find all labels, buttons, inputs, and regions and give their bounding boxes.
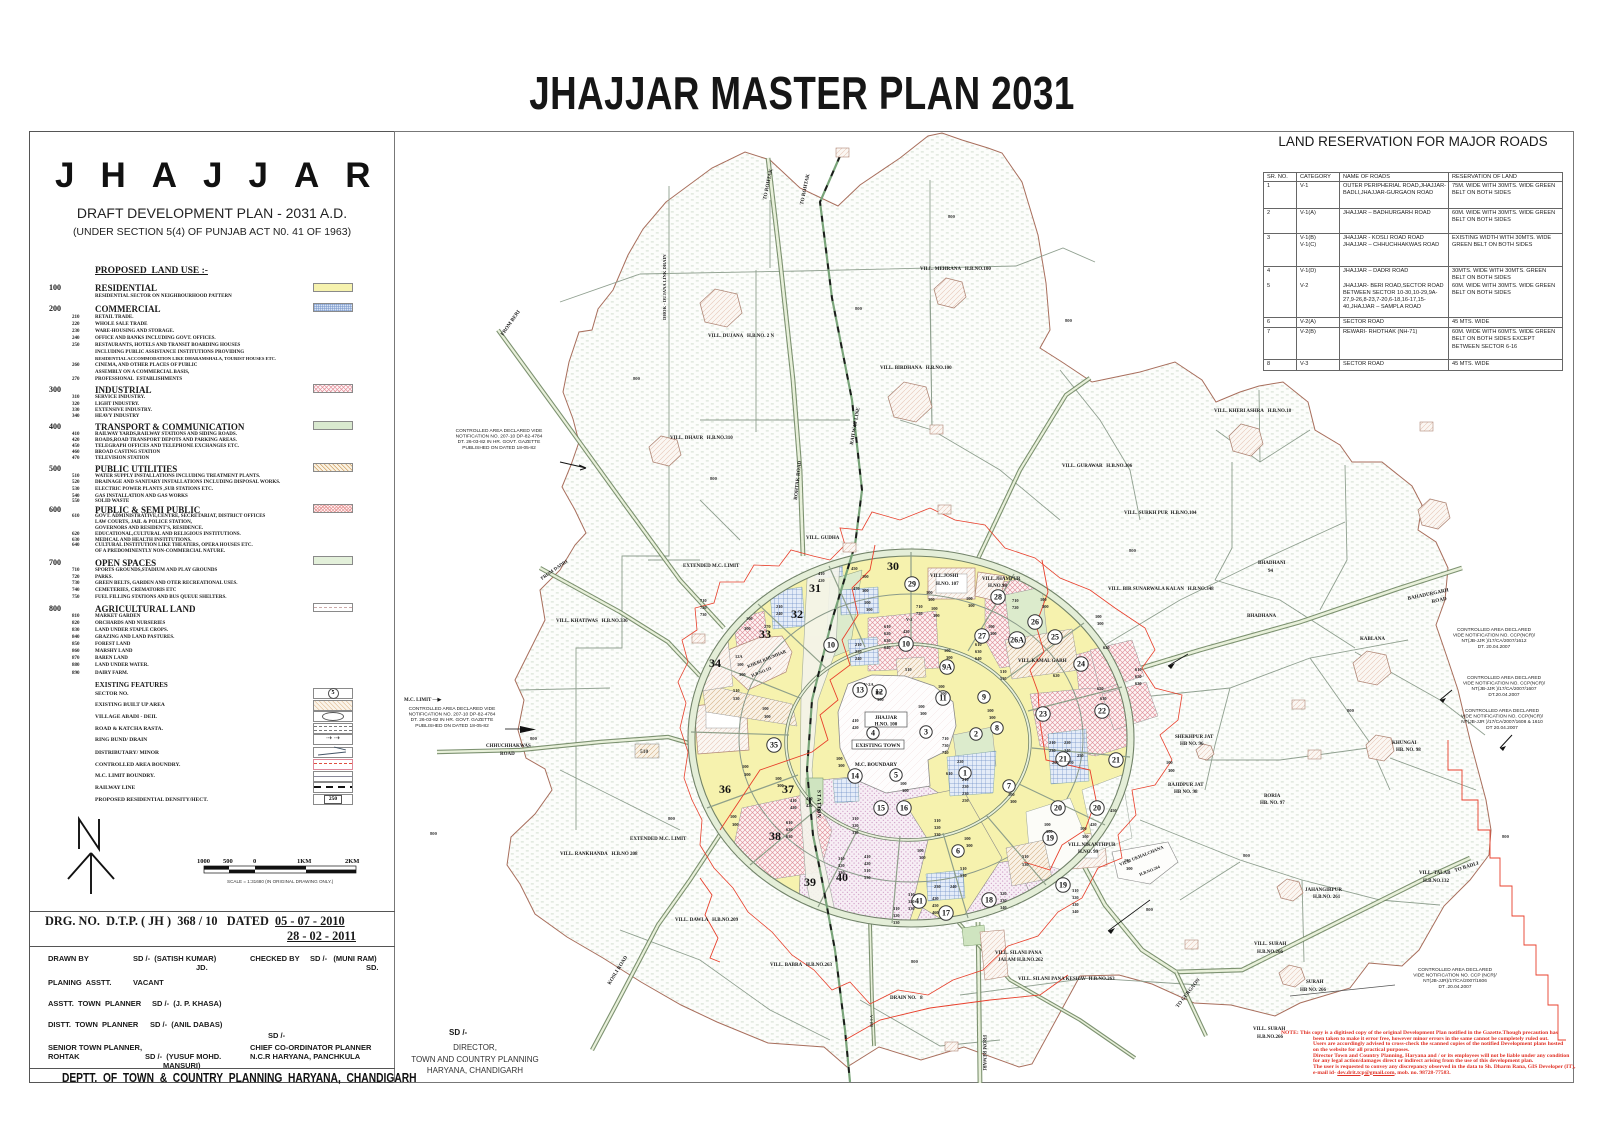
svg-text:100: 100 <box>1008 792 1015 797</box>
svg-text:VILL. BABRA H.B.NO.263: VILL. BABRA H.B.NO.263 <box>770 963 832 968</box>
svg-text:800: 800 <box>1146 907 1154 912</box>
svg-text:CONTROLLED AREA DECLARED VIDE: CONTROLLED AREA DECLARED VIDE <box>409 706 496 712</box>
svg-text:VILL.NIKANTHPUR: VILL.NIKANTHPUR <box>1068 843 1116 848</box>
svg-text:100: 100 <box>966 596 973 601</box>
svg-text:220: 220 <box>962 784 969 789</box>
svg-text:300: 300 <box>739 672 746 677</box>
svg-text:41: 41 <box>915 897 923 906</box>
svg-text:240: 240 <box>855 656 862 661</box>
svg-text:300: 300 <box>1168 768 1175 773</box>
svg-text:14: 14 <box>851 772 859 781</box>
svg-text:100: 100 <box>1040 597 1047 602</box>
svg-text:300: 300 <box>777 783 784 788</box>
svg-text:630: 630 <box>1100 696 1107 701</box>
svg-text:HB NO. 98: HB NO. 98 <box>1174 790 1198 795</box>
svg-text:230: 230 <box>934 884 941 889</box>
svg-text:230: 230 <box>1049 748 1056 753</box>
svg-text:9A: 9A <box>942 663 952 672</box>
svg-text:BAJIDPUR JAT: BAJIDPUR JAT <box>1168 783 1204 788</box>
svg-text:710: 710 <box>700 598 707 603</box>
svg-text:510: 510 <box>960 866 967 871</box>
svg-text:VILL. RANKHANDA H.B.NO 208: VILL. RANKHANDA H.B.NO 208 <box>560 852 638 857</box>
svg-text:800: 800 <box>710 476 718 481</box>
svg-text:EXTENDED M.C. LIMIT: EXTENDED M.C. LIMIT <box>683 564 740 569</box>
svg-text:VILL.KAMAL GARH: VILL.KAMAL GARH <box>1018 659 1067 664</box>
svg-text:32: 32 <box>791 607 803 621</box>
svg-text:25: 25 <box>1051 633 1059 642</box>
svg-text:330: 330 <box>838 870 845 875</box>
svg-text:35: 35 <box>770 741 778 750</box>
svg-text:100: 100 <box>730 814 737 819</box>
svg-text:STATION: STATION <box>816 790 821 819</box>
svg-text:31: 31 <box>809 581 821 595</box>
svg-text:HB. NO. 97: HB. NO. 97 <box>1260 801 1285 806</box>
svg-text:420: 420 <box>818 578 825 583</box>
svg-text:530: 530 <box>864 875 871 880</box>
svg-text:H.NO. 100: H.NO. 100 <box>875 723 898 728</box>
svg-text:19: 19 <box>1046 834 1054 843</box>
svg-text:100: 100 <box>875 690 882 695</box>
svg-text:SCALE = 1:31680 (IN ORIGINAL D: SCALE = 1:31680 (IN ORIGINAL DRAWING ONL… <box>227 879 334 884</box>
svg-text:100: 100 <box>1124 858 1131 863</box>
svg-text:330: 330 <box>1072 902 1079 907</box>
svg-text:100: 100 <box>926 590 933 595</box>
svg-text:240: 240 <box>950 884 957 889</box>
svg-text:800: 800 <box>1502 834 1510 839</box>
svg-text:26A: 26A <box>1010 636 1024 645</box>
svg-text:NT(JB-JJR )/17/CA/2007/1612: NT(JB-JJR )/17/CA/2007/1612 <box>1461 638 1526 644</box>
svg-text:800: 800 <box>1065 318 1073 323</box>
svg-text:710: 710 <box>916 604 923 609</box>
svg-text:630: 630 <box>786 834 793 839</box>
svg-text:27: 27 <box>978 632 986 641</box>
svg-text:HB NO. 96: HB NO. 96 <box>1180 742 1204 747</box>
svg-text:530: 530 <box>1022 862 1029 867</box>
svg-text:610: 610 <box>884 624 891 629</box>
svg-text:450: 450 <box>932 903 939 908</box>
svg-text:650: 650 <box>1135 674 1142 679</box>
svg-text:300: 300 <box>1126 866 1133 871</box>
svg-text:V-2A: V-2A <box>864 682 875 687</box>
svg-text:510: 510 <box>733 688 740 693</box>
svg-text:VIDE NOTIFICATION NO. CCP(NCR): VIDE NOTIFICATION NO. CCP(NCR)/ <box>1463 681 1546 687</box>
svg-text:410: 410 <box>852 718 859 723</box>
svg-text:39: 39 <box>804 875 816 889</box>
svg-text:300: 300 <box>946 655 953 660</box>
svg-text:2KM: 2KM <box>345 858 359 865</box>
svg-text:210: 210 <box>1049 740 1056 745</box>
svg-text:460: 460 <box>932 910 939 915</box>
svg-text:100: 100 <box>900 781 907 786</box>
svg-text:800: 800 <box>430 831 438 836</box>
svg-text:300: 300 <box>920 711 927 716</box>
svg-text:510: 510 <box>864 868 871 873</box>
svg-text:DT.20.04.2007: DT.20.04.2007 <box>1488 692 1520 698</box>
svg-text:310: 310 <box>908 892 915 897</box>
svg-text:510: 510 <box>1022 854 1029 859</box>
svg-text:VILL. DHAUR H.B.NO.310: VILL. DHAUR H.B.NO.310 <box>670 436 733 441</box>
svg-text:DT .20.04.2007: DT .20.04.2007 <box>1439 984 1472 990</box>
svg-text:VILL. DUJANA H.B.NO. 2 N: VILL. DUJANA H.B.NO. 2 N <box>708 334 775 339</box>
svg-text:29: 29 <box>908 580 916 589</box>
svg-text:36: 36 <box>719 782 731 796</box>
svg-text:21: 21 <box>1059 755 1067 764</box>
svg-text:M.C. BOUNDARY: M.C. BOUNDARY <box>855 762 898 768</box>
svg-text:20: 20 <box>1093 804 1101 813</box>
svg-text:530: 530 <box>960 873 967 878</box>
svg-text:VIDE NOTIFICATION NO. CCP(NCR): VIDE NOTIFICATION NO. CCP(NCR)/ <box>1453 633 1536 639</box>
svg-text:VILL. KHATIWAS H.B.NO.336: VILL. KHATIWAS H.B.NO.336 <box>556 619 628 624</box>
svg-text:800: 800 <box>1129 548 1137 553</box>
svg-text:300: 300 <box>1010 799 1017 804</box>
svg-text:330: 330 <box>908 906 915 911</box>
svg-text:SHEKHPUR JAT: SHEKHPUR JAT <box>1175 735 1214 740</box>
svg-text:800: 800 <box>948 214 956 219</box>
svg-text:M.C. LIMIT —▶: M.C. LIMIT —▶ <box>404 697 443 703</box>
svg-text:300: 300 <box>764 714 771 719</box>
svg-text:410: 410 <box>790 798 797 803</box>
svg-text:420: 420 <box>852 725 859 730</box>
svg-text:240: 240 <box>776 611 783 616</box>
svg-text:220: 220 <box>957 759 964 764</box>
svg-text:100: 100 <box>938 684 945 689</box>
svg-text:300: 300 <box>968 603 975 608</box>
svg-text:28: 28 <box>994 593 1002 602</box>
svg-text:100: 100 <box>746 616 753 621</box>
svg-text:KABLANA: KABLANA <box>1360 637 1385 642</box>
svg-text:8: 8 <box>995 724 999 733</box>
svg-text:18: 18 <box>985 896 993 905</box>
svg-text:H.B.NO. 261: H.B.NO. 261 <box>1313 895 1341 900</box>
svg-text:270: 270 <box>764 624 771 629</box>
svg-text:630: 630 <box>884 638 891 643</box>
svg-text:610: 610 <box>975 642 982 647</box>
svg-text:6: 6 <box>956 847 960 856</box>
svg-text:720: 720 <box>916 611 923 616</box>
svg-text:420: 420 <box>864 861 871 866</box>
svg-text:300: 300 <box>990 631 997 636</box>
svg-text:JALAM H.B.NO.262: JALAM H.B.NO.262 <box>998 958 1044 963</box>
svg-text:610: 610 <box>1135 667 1142 672</box>
svg-text:1000: 1000 <box>197 858 210 865</box>
svg-text:250: 250 <box>1077 753 1084 758</box>
svg-text:630: 630 <box>1135 681 1142 686</box>
svg-text:300: 300 <box>1042 604 1049 609</box>
svg-text:9: 9 <box>982 693 986 702</box>
svg-text:800: 800 <box>668 816 676 821</box>
svg-text:23: 23 <box>1039 710 1047 719</box>
svg-text:100: 100 <box>737 662 744 667</box>
svg-text:94: 94 <box>1268 569 1274 574</box>
svg-text:10: 10 <box>827 641 835 650</box>
svg-text:320: 320 <box>934 825 941 830</box>
svg-text:500: 500 <box>223 858 233 865</box>
svg-text:100: 100 <box>1044 822 1051 827</box>
svg-text:NT(JB-JJR )/17/CA/2007/1607: NT(JB-JJR )/17/CA/2007/1607 <box>1471 686 1536 692</box>
svg-text:310: 310 <box>934 818 941 823</box>
svg-text:FROM REWARI: FROM REWARI <box>981 1035 986 1071</box>
svg-text:26: 26 <box>1031 618 1039 627</box>
svg-text:320: 320 <box>893 913 900 918</box>
svg-text:620: 620 <box>1103 645 1110 650</box>
svg-text:300: 300 <box>866 607 873 612</box>
svg-text:510: 510 <box>640 749 649 755</box>
svg-text:720: 720 <box>1012 605 1019 610</box>
svg-text:610: 610 <box>946 771 953 776</box>
svg-text:VILL. SURKH PUR H.B.NO.104: VILL. SURKH PUR H.B.NO.104 <box>1124 511 1197 516</box>
svg-text:270: 270 <box>1067 760 1074 765</box>
svg-text:NT(JB-JJR)/17/CA/2007/1606: NT(JB-JJR)/17/CA/2007/1606 <box>1423 978 1487 984</box>
svg-text:330: 330 <box>852 830 859 835</box>
svg-text:260: 260 <box>1052 760 1059 765</box>
svg-text:DT. 20.04.2007: DT. 20.04.2007 <box>1478 644 1511 650</box>
svg-text:VILL. TALAB: VILL. TALAB <box>1419 871 1451 876</box>
svg-text:100: 100 <box>1080 826 1087 831</box>
svg-text:V-2: V-2 <box>906 617 913 622</box>
svg-text:310: 310 <box>1072 888 1079 893</box>
svg-text:PUBLISHED ON DATED 18-05-82: PUBLISHED ON DATED 18-05-82 <box>462 445 536 451</box>
svg-text:250: 250 <box>962 798 969 803</box>
svg-text:100: 100 <box>742 764 749 769</box>
svg-text:470: 470 <box>853 586 860 591</box>
svg-text:740: 740 <box>942 750 949 755</box>
svg-text:620: 620 <box>884 631 891 636</box>
svg-text:20: 20 <box>1054 804 1062 813</box>
svg-text:240: 240 <box>1064 748 1071 753</box>
svg-text:DT 20.04.2007: DT 20.04.2007 <box>1486 725 1518 731</box>
svg-text:VILL. GURAWAR H.B.NO.306: VILL. GURAWAR H.B.NO.306 <box>1062 464 1133 469</box>
svg-text:300: 300 <box>744 626 751 631</box>
svg-text:720: 720 <box>700 605 707 610</box>
svg-text:310: 310 <box>852 816 859 821</box>
svg-text:100: 100 <box>775 776 782 781</box>
svg-text:VIDE NOTIFICATION NO. CCP(NCR): VIDE NOTIFICATION NO. CCP(NCR)/ <box>1461 714 1544 720</box>
svg-text:210: 210 <box>855 642 862 647</box>
svg-text:100: 100 <box>988 624 995 629</box>
svg-text:16: 16 <box>900 804 908 813</box>
svg-text:VILL. SILANI PANA: VILL. SILANI PANA <box>995 951 1042 956</box>
svg-text:100: 100 <box>1166 760 1173 765</box>
svg-text:JAHANGIRPUR: JAHANGIRPUR <box>1305 888 1342 893</box>
svg-text:210: 210 <box>962 777 969 782</box>
svg-text:VIDE NOTIFICATION NO. CCP (NCR: VIDE NOTIFICATION NO. CCP (NCR)/ <box>1413 973 1497 979</box>
svg-text:100: 100 <box>762 706 769 711</box>
svg-text:37: 37 <box>782 782 794 796</box>
svg-text:800: 800 <box>911 959 919 964</box>
svg-text:620: 620 <box>1097 686 1104 691</box>
svg-text:22: 22 <box>1098 707 1106 716</box>
svg-text:300: 300 <box>1097 621 1104 626</box>
svg-text:H.B.NO.132: H.B.NO.132 <box>1423 879 1449 884</box>
svg-text:100: 100 <box>862 574 869 579</box>
svg-text:510: 510 <box>905 667 912 672</box>
svg-text:VILL.JHAMPUR: VILL.JHAMPUR <box>982 577 1021 582</box>
svg-text:310: 310 <box>893 906 900 911</box>
svg-text:100: 100 <box>864 600 871 605</box>
svg-text:12A: 12A <box>735 654 743 659</box>
svg-text:320: 320 <box>852 823 859 828</box>
svg-text:300: 300 <box>862 588 869 593</box>
svg-text:DT. 26-03-82 IN HR. GOVT. GAZE: DT. 26-03-82 IN HR. GOVT. GAZETTE <box>411 717 494 723</box>
svg-text:320: 320 <box>1072 895 1079 900</box>
svg-text:H.NO.98: H.NO.98 <box>988 584 1007 589</box>
svg-text:300: 300 <box>744 772 751 777</box>
svg-text:450: 450 <box>1110 808 1117 813</box>
svg-text:VILL. DAWLA H.B.NO.209: VILL. DAWLA H.B.NO.209 <box>675 918 739 923</box>
svg-text:640: 640 <box>975 656 982 661</box>
svg-text:CONTROLLED AREA DECLARED: CONTROLLED AREA DECLARED <box>1457 627 1532 633</box>
svg-text:730: 730 <box>942 743 949 748</box>
svg-text:300: 300 <box>732 822 739 827</box>
svg-text:BHADHANI: BHADHANI <box>1258 561 1286 566</box>
svg-text:21: 21 <box>1112 756 1120 765</box>
svg-text:300: 300 <box>928 597 935 602</box>
svg-text:DHOK - DUJANA LINK DRAIN: DHOK - DUJANA LINK DRAIN <box>662 254 667 320</box>
svg-text:H.B.NO.266: H.B.NO.266 <box>1257 1035 1283 1040</box>
svg-text:5: 5 <box>894 771 898 780</box>
svg-text:340: 340 <box>1000 905 1007 910</box>
svg-text:410: 410 <box>806 796 813 801</box>
svg-text:0: 0 <box>253 858 256 865</box>
svg-text:300: 300 <box>989 715 996 720</box>
svg-text:340: 340 <box>1072 909 1079 914</box>
svg-text:230: 230 <box>962 791 969 796</box>
svg-text:CONTROLLED AREA DECLARED: CONTROLLED AREA DECLARED <box>1465 708 1540 714</box>
svg-text:H.NO. 107: H.NO. 107 <box>936 582 959 587</box>
svg-text:320: 320 <box>908 899 915 904</box>
svg-text:630: 630 <box>975 649 982 654</box>
svg-text:BORIA: BORIA <box>1264 794 1281 799</box>
svg-text:H.NO. 99: H.NO. 99 <box>1078 850 1099 855</box>
svg-text:VILL. BIR SUNARWALA KALAN H: VILL. BIR SUNARWALA KALAN H.B.NO.348 <box>1108 587 1214 592</box>
svg-text:620: 620 <box>786 827 793 832</box>
svg-text:420: 420 <box>932 896 939 901</box>
svg-text:NT(JB-JJR )/17/CA/2007/1608 &: NT(JB-JJR )/17/CA/2007/1608 & 1610 <box>1461 719 1543 725</box>
svg-text:320: 320 <box>838 863 845 868</box>
svg-text:JHAJJAR: JHAJJAR <box>875 716 898 721</box>
svg-text:4: 4 <box>871 729 875 738</box>
svg-text:30: 30 <box>887 559 899 573</box>
svg-text:CHHUCHHAKWAS: CHHUCHHAKWAS <box>486 744 531 749</box>
svg-text:VILL. BIRDHANA H.B.NO.100: VILL. BIRDHANA H.B.NO.100 <box>880 366 952 371</box>
svg-text:410: 410 <box>864 854 871 859</box>
svg-text:100: 100 <box>1095 614 1102 619</box>
svg-text:10: 10 <box>902 640 910 649</box>
svg-text:SURAH: SURAH <box>1306 980 1324 985</box>
svg-text:1KM: 1KM <box>297 858 311 865</box>
svg-text:450: 450 <box>851 566 858 571</box>
svg-text:VILL. GUDHA: VILL. GUDHA <box>806 536 840 541</box>
svg-text:210: 210 <box>776 604 783 609</box>
svg-text:ROAD: ROAD <box>500 752 515 757</box>
svg-text:EXISTING TOWN: EXISTING TOWN <box>856 743 901 749</box>
svg-text:220: 220 <box>855 649 862 654</box>
svg-text:530: 530 <box>733 696 740 701</box>
svg-text:100: 100 <box>836 756 843 761</box>
svg-text:2: 2 <box>974 730 978 739</box>
svg-text:VILL. SILANI PANA KESHAV H.B.: VILL. SILANI PANA KESHAV H.B.NO.263 <box>1018 977 1115 982</box>
svg-text:330: 330 <box>1000 898 1007 903</box>
svg-text:800: 800 <box>1347 708 1355 713</box>
svg-text:300: 300 <box>933 613 940 618</box>
svg-text:V-1 (B): V-1 (B) <box>869 1015 874 1028</box>
svg-text:800: 800 <box>633 376 641 381</box>
svg-text:620: 620 <box>1053 673 1060 678</box>
svg-text:410: 410 <box>818 571 825 576</box>
svg-text:PUBLISHED ON DATED 18-05-82: PUBLISHED ON DATED 18-05-82 <box>415 723 489 729</box>
svg-text:VILL. SURAH: VILL. SURAH <box>1254 942 1286 947</box>
svg-text:VILL. SURAH: VILL. SURAH <box>1253 1027 1285 1032</box>
svg-text:100: 100 <box>964 836 971 841</box>
svg-text:320: 320 <box>1000 891 1007 896</box>
svg-text:100: 100 <box>918 704 925 709</box>
svg-text:300: 300 <box>902 788 909 793</box>
svg-text:DRAIN NO. 8: DRAIN NO. 8 <box>890 996 923 1001</box>
svg-text:24: 24 <box>1077 660 1085 669</box>
svg-text:420: 420 <box>806 803 813 808</box>
svg-text:7: 7 <box>1007 782 1011 791</box>
svg-text:420: 420 <box>790 805 797 810</box>
svg-text:730: 730 <box>700 612 707 617</box>
svg-text:300: 300 <box>966 843 973 848</box>
svg-text:NOTIFICATION NO. 207-10 DP-82-: NOTIFICATION NO. 207-10 DP-82-4784 <box>456 434 543 440</box>
svg-text:300: 300 <box>1046 829 1053 834</box>
svg-text:34: 34 <box>709 656 721 670</box>
svg-text:100: 100 <box>987 708 994 713</box>
svg-text:800: 800 <box>530 736 538 741</box>
svg-text:CONTROLLED AREA DECLARED: CONTROLLED AREA DECLARED <box>1467 675 1542 681</box>
svg-text:330: 330 <box>934 832 941 837</box>
svg-text:CONTROLLED AREA DECLARED VIDE: CONTROLLED AREA DECLARED VIDE <box>456 428 543 434</box>
svg-text:KHUNGAI: KHUNGAI <box>1392 741 1417 746</box>
svg-text:710: 710 <box>1012 598 1019 603</box>
svg-text:100: 100 <box>917 848 924 853</box>
svg-text:300: 300 <box>877 697 884 702</box>
svg-text:CONTROLLED AREA DECLARED: CONTROLLED AREA DECLARED <box>1418 967 1493 973</box>
svg-text:VILL.JOSHI: VILL.JOSHI <box>930 574 959 579</box>
svg-text:100: 100 <box>944 648 951 653</box>
svg-text:33: 33 <box>759 627 771 641</box>
svg-text:220: 220 <box>1064 740 1071 745</box>
svg-text:17: 17 <box>942 909 950 918</box>
svg-text:530: 530 <box>1000 676 1007 681</box>
svg-text:EXTENDED M.C. LIMIT: EXTENDED M.C. LIMIT <box>630 837 687 842</box>
svg-text:VILL. KHERI ASHRA H.B.NO.18: VILL. KHERI ASHRA H.B.NO.18 <box>1214 409 1292 414</box>
svg-text:420: 420 <box>1090 822 1097 827</box>
svg-text:330: 330 <box>893 920 900 925</box>
svg-text:DT. 26-03-82 IN HR. GOVT. GAZE: DT. 26-03-82 IN HR. GOVT. GAZETTE <box>458 439 541 445</box>
svg-text:640: 640 <box>884 645 891 650</box>
svg-text:100: 100 <box>931 606 938 611</box>
svg-text:300: 300 <box>919 855 926 860</box>
svg-text:3: 3 <box>924 728 928 737</box>
svg-text:BHADHANA: BHADHANA <box>1247 614 1277 619</box>
svg-text:VILL. MEHRANA H.B.NO.100: VILL. MEHRANA H.B.NO.100 <box>920 267 991 272</box>
svg-text:710: 710 <box>942 736 949 741</box>
svg-text:510: 510 <box>1000 669 1007 674</box>
svg-text:NOTIFICATION NO. 207-10 DP-82-: NOTIFICATION NO. 207-10 DP-82-4784 <box>409 712 496 718</box>
svg-text:HB. NO. 98: HB. NO. 98 <box>1396 748 1421 753</box>
svg-text:15: 15 <box>877 804 885 813</box>
svg-text:300: 300 <box>838 763 845 768</box>
svg-text:300: 300 <box>940 691 947 696</box>
svg-text:H.B.NO.266: H.B.NO.266 <box>1257 950 1283 955</box>
svg-text:310: 310 <box>838 856 845 861</box>
svg-text:800: 800 <box>855 306 863 311</box>
svg-text:13: 13 <box>856 686 864 695</box>
svg-text:300: 300 <box>1082 834 1089 839</box>
svg-text:610: 610 <box>786 820 793 825</box>
